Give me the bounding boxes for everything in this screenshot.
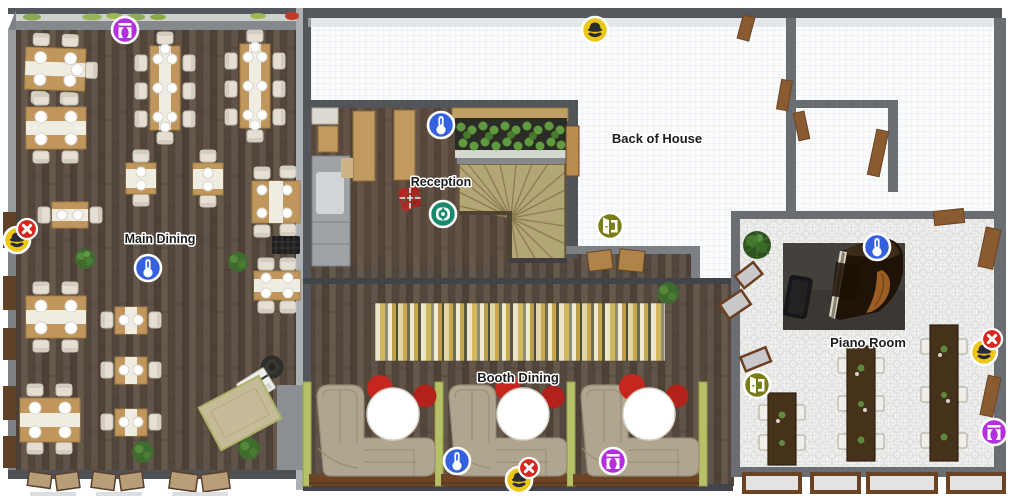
svg-text:Booth Dining: Booth Dining bbox=[477, 370, 559, 385]
svg-text:Piano Room: Piano Room bbox=[830, 335, 906, 350]
svg-text:Back of House: Back of House bbox=[612, 131, 702, 146]
svg-text:Main Dining: Main Dining bbox=[125, 232, 196, 246]
svg-text:Reception: Reception bbox=[411, 175, 471, 189]
